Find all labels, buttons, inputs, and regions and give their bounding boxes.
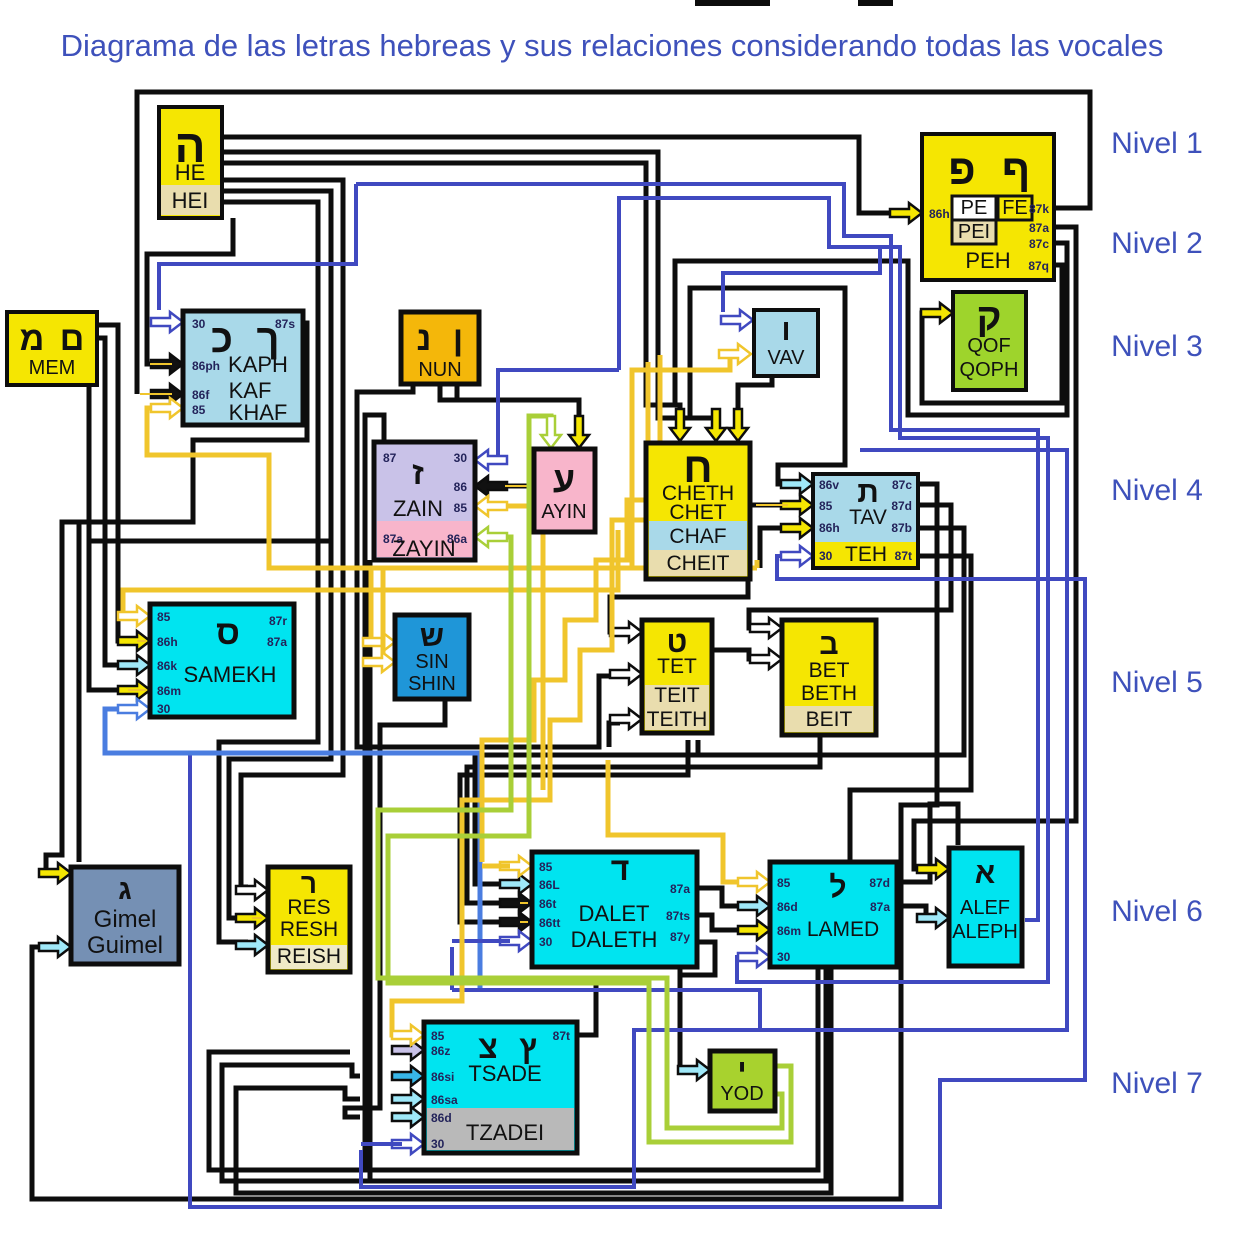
svg-text:87c: 87c bbox=[1029, 237, 1049, 251]
svg-text:86ph: 86ph bbox=[192, 359, 220, 373]
svg-text:BEIT: BEIT bbox=[806, 708, 853, 731]
svg-text:מ: מ bbox=[20, 320, 45, 358]
svg-text:KAPH: KAPH bbox=[228, 352, 288, 377]
svg-text:ב: ב bbox=[819, 628, 838, 661]
svg-text:ע: ע bbox=[553, 459, 575, 500]
svg-text:87c: 87c bbox=[892, 478, 912, 492]
svg-text:Nivel 6: Nivel 6 bbox=[1111, 895, 1203, 928]
svg-text:86sa: 86sa bbox=[431, 1093, 458, 1107]
svg-text:QOF: QOF bbox=[967, 335, 1010, 357]
svg-text:NUN: NUN bbox=[418, 359, 461, 381]
svg-text:86h: 86h bbox=[819, 521, 840, 535]
svg-text:SAMEKH: SAMEKH bbox=[184, 662, 277, 687]
svg-text:86h: 86h bbox=[929, 207, 950, 221]
svg-text:PEI: PEI bbox=[958, 221, 990, 243]
svg-text:86L: 86L bbox=[539, 878, 560, 892]
svg-text:30: 30 bbox=[539, 935, 553, 949]
svg-text:TAV: TAV bbox=[849, 506, 887, 529]
svg-text:BET: BET bbox=[809, 659, 850, 682]
svg-text:86f: 86f bbox=[192, 388, 210, 402]
svg-text:DALETH: DALETH bbox=[571, 927, 658, 952]
svg-text:ZAYIN: ZAYIN bbox=[392, 536, 455, 561]
svg-text:MEM: MEM bbox=[29, 357, 76, 379]
svg-text:TEITH: TEITH bbox=[647, 708, 708, 731]
svg-text:ץ: ץ bbox=[519, 1029, 537, 1065]
svg-text:86k: 86k bbox=[157, 659, 177, 673]
svg-text:87y: 87y bbox=[670, 930, 690, 944]
svg-text:פ: פ bbox=[948, 146, 975, 193]
svg-text:87t: 87t bbox=[553, 1029, 570, 1043]
svg-text:85: 85 bbox=[454, 501, 468, 515]
svg-text:87q: 87q bbox=[1028, 259, 1049, 273]
svg-text:86m: 86m bbox=[777, 924, 801, 938]
svg-text:FE: FE bbox=[1002, 197, 1028, 219]
svg-text:ר: ר bbox=[301, 868, 317, 899]
svg-text:ג: ג bbox=[118, 874, 131, 905]
svg-text:Nivel 5: Nivel 5 bbox=[1111, 666, 1203, 699]
svg-text:ן: ן bbox=[453, 320, 463, 358]
svg-text:ALEPH: ALEPH bbox=[952, 921, 1018, 943]
svg-text:30: 30 bbox=[431, 1137, 445, 1151]
svg-text:86v: 86v bbox=[819, 478, 839, 492]
svg-text:ל: ל bbox=[829, 871, 846, 904]
svg-text:SIN: SIN bbox=[415, 651, 448, 673]
svg-text:ף: ף bbox=[1002, 146, 1030, 193]
svg-text:ת: ת bbox=[857, 476, 879, 509]
svg-text:30: 30 bbox=[819, 549, 833, 563]
svg-text:AYIN: AYIN bbox=[541, 501, 586, 523]
svg-text:SHIN: SHIN bbox=[408, 673, 456, 695]
svg-text:נ: נ bbox=[417, 320, 432, 358]
svg-text:HEI: HEI bbox=[172, 188, 209, 213]
svg-text:ZAIN: ZAIN bbox=[393, 496, 443, 521]
svg-text:PE: PE bbox=[961, 197, 988, 219]
svg-text:ק: ק bbox=[977, 297, 1002, 339]
svg-text:30: 30 bbox=[192, 317, 206, 331]
svg-text:HE: HE bbox=[175, 160, 206, 185]
svg-text:87a: 87a bbox=[1029, 221, 1049, 235]
svg-text:86d: 86d bbox=[777, 900, 798, 914]
svg-text:YOD: YOD bbox=[720, 1083, 763, 1105]
svg-text:30: 30 bbox=[454, 451, 468, 465]
svg-text:87d: 87d bbox=[869, 876, 890, 890]
svg-text:Nivel 1: Nivel 1 bbox=[1111, 127, 1203, 160]
svg-text:TEH: TEH bbox=[845, 543, 887, 566]
svg-text:ז: ז bbox=[412, 455, 424, 491]
svg-text:87: 87 bbox=[383, 451, 397, 465]
svg-text:צ: צ bbox=[478, 1029, 497, 1065]
svg-text:Nivel 3: Nivel 3 bbox=[1111, 330, 1203, 363]
svg-text:86z: 86z bbox=[431, 1044, 450, 1058]
svg-text:CHET: CHET bbox=[669, 501, 726, 524]
svg-text:87d: 87d bbox=[891, 499, 912, 513]
svg-text:ס: ס bbox=[216, 614, 240, 652]
svg-text:85: 85 bbox=[192, 403, 206, 417]
svg-text:87r: 87r bbox=[269, 614, 287, 628]
svg-text:86t: 86t bbox=[539, 897, 556, 911]
svg-text:REISH: REISH bbox=[277, 945, 341, 968]
svg-text:85: 85 bbox=[777, 876, 791, 890]
svg-text:TET: TET bbox=[657, 655, 697, 678]
svg-text:Gimel: Gimel bbox=[94, 906, 157, 933]
svg-text:86si: 86si bbox=[431, 1070, 454, 1084]
svg-text:87a: 87a bbox=[670, 882, 690, 896]
svg-text:85: 85 bbox=[819, 499, 833, 513]
svg-text:85: 85 bbox=[431, 1029, 445, 1043]
svg-text:ש: ש bbox=[420, 620, 444, 653]
svg-text:85: 85 bbox=[157, 610, 171, 624]
svg-text:Nivel 2: Nivel 2 bbox=[1111, 227, 1203, 260]
svg-text:CHEIT: CHEIT bbox=[667, 552, 730, 575]
svg-text:DALET: DALET bbox=[579, 901, 650, 926]
svg-text:87b: 87b bbox=[891, 521, 912, 535]
svg-text:Diagrama de las letras hebreas: Diagrama de las letras hebreas y sus rel… bbox=[61, 28, 1164, 63]
svg-text:Nivel 4: Nivel 4 bbox=[1111, 474, 1203, 507]
svg-text:VAV: VAV bbox=[767, 347, 805, 369]
svg-text:87a: 87a bbox=[870, 900, 890, 914]
svg-text:CHAF: CHAF bbox=[669, 525, 726, 548]
svg-text:86tt: 86tt bbox=[539, 916, 560, 930]
svg-text:Guimel: Guimel bbox=[87, 932, 163, 959]
svg-text:87a: 87a bbox=[267, 635, 287, 649]
svg-text:KHAF: KHAF bbox=[229, 400, 288, 425]
svg-text:86m: 86m bbox=[157, 684, 181, 698]
svg-text:BETH: BETH bbox=[801, 682, 857, 705]
svg-text:87ts: 87ts bbox=[666, 909, 690, 923]
svg-text:ד: ד bbox=[611, 851, 630, 887]
svg-text:LAMED: LAMED bbox=[807, 918, 879, 941]
svg-text:30: 30 bbox=[157, 702, 171, 716]
svg-text:87k: 87k bbox=[1029, 202, 1049, 216]
svg-text:Nivel 7: Nivel 7 bbox=[1111, 1067, 1203, 1100]
svg-text:TEIT: TEIT bbox=[654, 684, 700, 707]
svg-text:87t: 87t bbox=[895, 549, 912, 563]
svg-text:RESH: RESH bbox=[280, 918, 338, 941]
svg-text:ו: ו bbox=[781, 314, 790, 347]
svg-text:86d: 86d bbox=[431, 1111, 452, 1125]
svg-text:87s: 87s bbox=[275, 317, 295, 331]
svg-text:30: 30 bbox=[777, 950, 791, 964]
svg-text:QOPH: QOPH bbox=[960, 359, 1019, 381]
svg-text:RES: RES bbox=[287, 896, 330, 919]
svg-text:א: א bbox=[975, 857, 995, 890]
svg-text:86: 86 bbox=[454, 480, 468, 494]
svg-text:TZADEI: TZADEI bbox=[466, 1120, 544, 1145]
svg-text:86h: 86h bbox=[157, 635, 178, 649]
svg-text:ם: ם bbox=[60, 320, 85, 358]
svg-text:TSADE: TSADE bbox=[468, 1061, 541, 1086]
svg-text:ALEF: ALEF bbox=[960, 897, 1010, 919]
svg-text:85: 85 bbox=[539, 860, 553, 874]
svg-text:PEH: PEH bbox=[965, 248, 1010, 273]
